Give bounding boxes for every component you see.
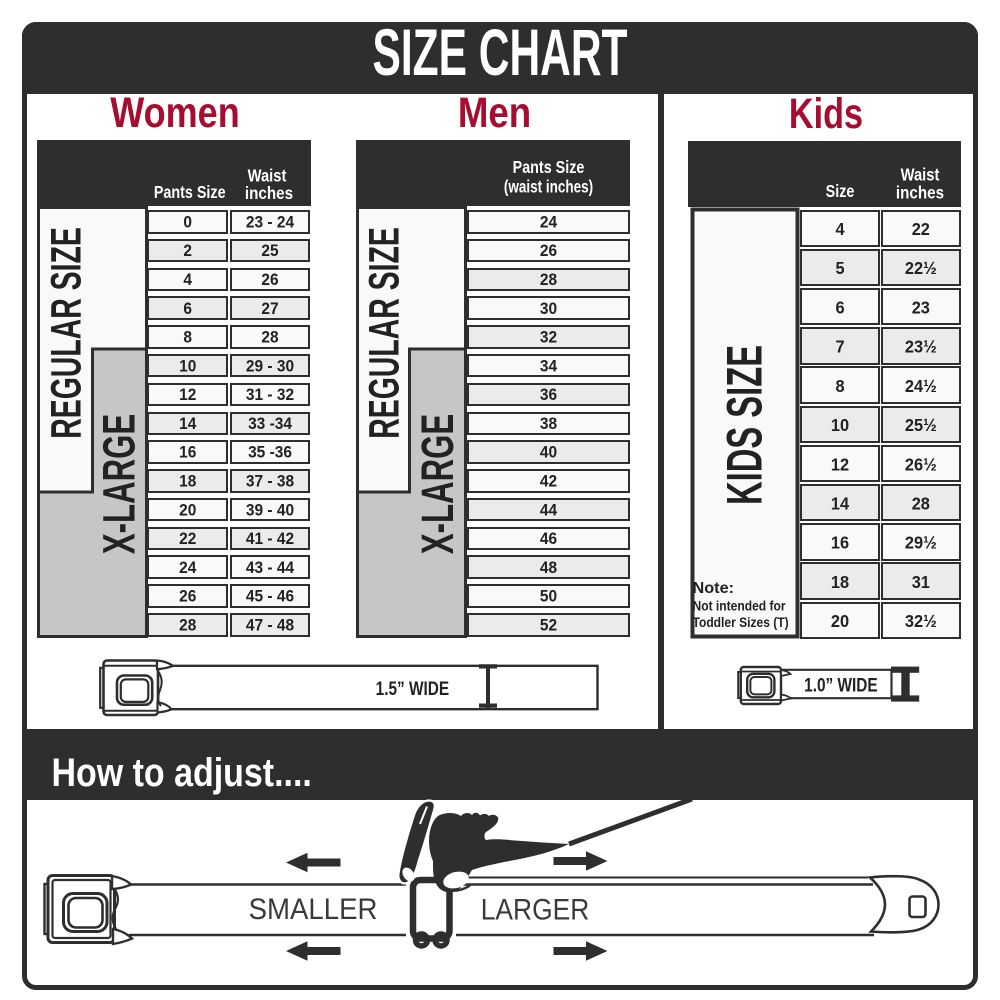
svg-text:LARGER: LARGER xyxy=(481,892,590,926)
svg-text:Women: Women xyxy=(110,89,239,137)
svg-text:KIDS SIZE: KIDS SIZE xyxy=(717,345,773,505)
svg-text:Men: Men xyxy=(458,89,531,136)
svg-text:26: 26 xyxy=(540,242,557,261)
svg-text:31: 31 xyxy=(912,571,931,592)
svg-text:28: 28 xyxy=(540,270,557,289)
svg-text:Note:: Note: xyxy=(693,580,735,597)
svg-text:20: 20 xyxy=(179,501,196,520)
svg-text:X-LARGE: X-LARGE xyxy=(95,414,145,554)
svg-text:Size: Size xyxy=(826,183,855,201)
svg-text:32: 32 xyxy=(540,328,557,347)
svg-text:4: 4 xyxy=(835,218,845,239)
svg-text:X-LARGE: X-LARGE xyxy=(413,414,463,554)
svg-text:2: 2 xyxy=(183,242,192,261)
svg-text:39 - 40: 39 - 40 xyxy=(246,501,294,520)
svg-text:25½: 25½ xyxy=(905,414,937,435)
svg-text:Pants Size: Pants Size xyxy=(513,159,585,177)
svg-text:30: 30 xyxy=(540,299,557,318)
svg-text:8: 8 xyxy=(835,375,845,396)
svg-text:(waist inches): (waist inches) xyxy=(504,178,593,197)
svg-text:52: 52 xyxy=(540,616,557,635)
svg-text:20: 20 xyxy=(831,610,849,631)
svg-text:5: 5 xyxy=(835,257,845,278)
svg-text:45 - 46: 45 - 46 xyxy=(246,587,294,606)
svg-text:28: 28 xyxy=(261,328,278,347)
svg-text:Waist: Waist xyxy=(248,167,287,186)
svg-text:24: 24 xyxy=(179,558,196,577)
svg-text:18: 18 xyxy=(831,571,850,592)
svg-text:1.0” WIDE: 1.0” WIDE xyxy=(804,674,877,696)
svg-text:40: 40 xyxy=(540,443,557,462)
svg-text:7: 7 xyxy=(835,336,844,357)
svg-text:26: 26 xyxy=(179,587,196,606)
svg-text:Not intended for: Not intended for xyxy=(693,597,786,613)
svg-text:47 - 48: 47 - 48 xyxy=(246,616,294,635)
svg-text:46: 46 xyxy=(540,529,557,548)
svg-text:SIZE CHART: SIZE CHART xyxy=(372,16,627,90)
svg-text:25: 25 xyxy=(261,242,278,261)
svg-text:28: 28 xyxy=(912,493,931,514)
svg-text:18: 18 xyxy=(179,472,196,491)
svg-text:41 - 42: 41 - 42 xyxy=(246,529,294,548)
svg-text:inches: inches xyxy=(245,184,293,203)
svg-text:37 - 38: 37 - 38 xyxy=(246,472,294,491)
svg-text:How to adjust....: How to adjust.... xyxy=(52,751,312,795)
svg-text:44: 44 xyxy=(540,501,557,520)
svg-text:32½: 32½ xyxy=(905,610,937,631)
svg-text:REGULAR SIZE: REGULAR SIZE xyxy=(42,227,90,439)
svg-text:4: 4 xyxy=(183,270,192,289)
svg-text:33 -34: 33 -34 xyxy=(248,414,292,433)
svg-text:28: 28 xyxy=(179,616,196,635)
svg-text:35 -36: 35 -36 xyxy=(248,443,292,462)
svg-text:23: 23 xyxy=(912,297,930,318)
svg-text:23 - 24: 23 - 24 xyxy=(246,213,294,232)
svg-text:6: 6 xyxy=(835,297,844,318)
svg-text:1.5” WIDE: 1.5” WIDE xyxy=(376,677,449,699)
svg-text:14: 14 xyxy=(831,493,850,514)
svg-text:38: 38 xyxy=(540,414,557,433)
svg-text:Waist: Waist xyxy=(901,165,940,184)
svg-text:24: 24 xyxy=(540,213,557,232)
svg-text:27: 27 xyxy=(261,299,278,318)
svg-text:26½: 26½ xyxy=(905,454,937,475)
svg-text:43 - 44: 43 - 44 xyxy=(246,558,294,577)
svg-text:23½: 23½ xyxy=(905,336,937,357)
svg-text:10: 10 xyxy=(831,414,849,435)
svg-text:0: 0 xyxy=(183,213,192,232)
svg-text:24½: 24½ xyxy=(905,375,937,396)
svg-text:22½: 22½ xyxy=(905,257,937,278)
svg-text:36: 36 xyxy=(540,386,557,405)
svg-text:inches: inches xyxy=(896,183,944,202)
svg-text:14: 14 xyxy=(179,414,196,433)
svg-text:Pants Size: Pants Size xyxy=(154,184,226,202)
svg-text:42: 42 xyxy=(540,472,557,491)
svg-text:8: 8 xyxy=(183,328,192,347)
svg-text:31 - 32: 31 - 32 xyxy=(246,386,294,405)
svg-text:22: 22 xyxy=(179,529,196,548)
svg-text:12: 12 xyxy=(831,454,849,475)
svg-text:REGULAR SIZE: REGULAR SIZE xyxy=(360,227,408,439)
svg-text:29½: 29½ xyxy=(905,532,937,553)
svg-text:16: 16 xyxy=(179,443,196,462)
svg-text:Toddler Sizes (T): Toddler Sizes (T) xyxy=(693,614,789,630)
svg-text:48: 48 xyxy=(540,558,557,577)
svg-text:10: 10 xyxy=(179,357,196,376)
svg-text:SMALLER: SMALLER xyxy=(249,893,378,926)
svg-text:29 - 30: 29 - 30 xyxy=(246,357,294,376)
svg-text:22: 22 xyxy=(912,218,930,239)
svg-text:34: 34 xyxy=(540,357,557,376)
svg-text:16: 16 xyxy=(831,532,849,553)
svg-text:50: 50 xyxy=(540,587,557,606)
svg-text:Kids: Kids xyxy=(789,90,863,138)
svg-text:26: 26 xyxy=(261,270,278,289)
svg-text:12: 12 xyxy=(179,386,196,405)
svg-text:6: 6 xyxy=(183,299,192,318)
